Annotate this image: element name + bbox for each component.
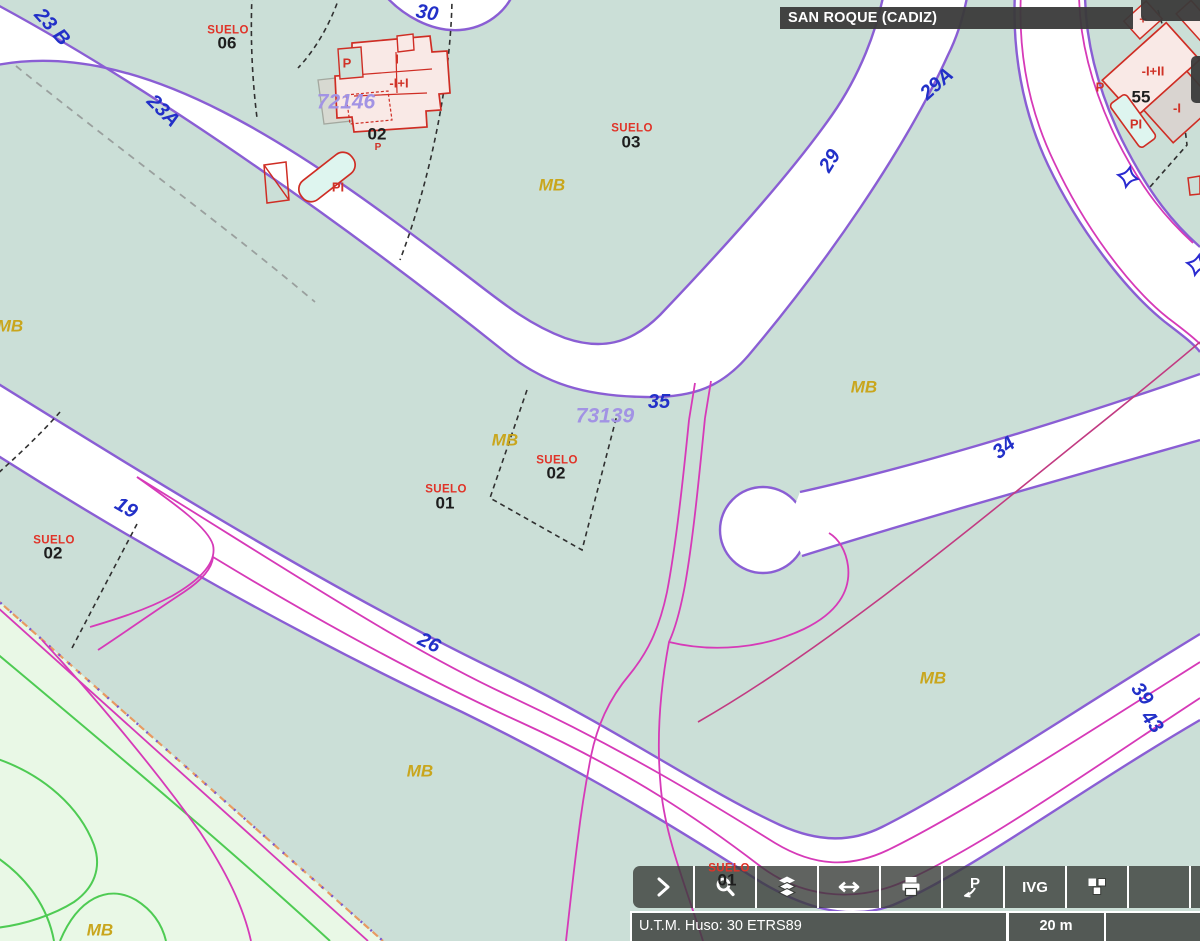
municipality-title: SAN ROQUE (CADIZ) (780, 7, 1133, 29)
status-bar: U.T.M. Huso: 30 ETRS89 20 m (630, 911, 1200, 941)
double-arrow-icon (836, 874, 862, 900)
print-button[interactable] (881, 866, 943, 908)
measure-button[interactable] (819, 866, 881, 908)
crs-indicator: U.T.M. Huso: 30 ETRS89 (630, 913, 1006, 941)
ivg-button[interactable]: IVG (1005, 866, 1067, 908)
layers-icon (774, 874, 800, 900)
magnifier-icon (712, 874, 738, 900)
right-edge-control[interactable] (1191, 56, 1200, 103)
catastro-map-viewer: 23 B23A3029A293534192639437214673139SUEL… (0, 0, 1200, 941)
cadastral-map[interactable] (0, 0, 1200, 941)
printer-icon (898, 874, 924, 900)
statusbar-spacer (1106, 913, 1200, 941)
toolbar-endcap (1191, 866, 1200, 908)
cubes-icon (1084, 874, 1110, 900)
p-arrow-icon: P (960, 874, 986, 900)
toolbar: P IVG (633, 866, 1200, 908)
expand-button[interactable] (633, 866, 695, 908)
layers-button[interactable] (757, 866, 819, 908)
toolbar-spacer (1129, 866, 1191, 908)
ivg-button-label: IVG (1022, 879, 1048, 896)
scale-indicator: 20 m (1009, 913, 1104, 941)
reference-point-button[interactable]: P (943, 866, 1005, 908)
top-right-panel-fragment (1141, 0, 1200, 21)
view-3d-button[interactable] (1067, 866, 1129, 908)
chevron-right-icon (650, 874, 676, 900)
zoom-button[interactable] (695, 866, 757, 908)
